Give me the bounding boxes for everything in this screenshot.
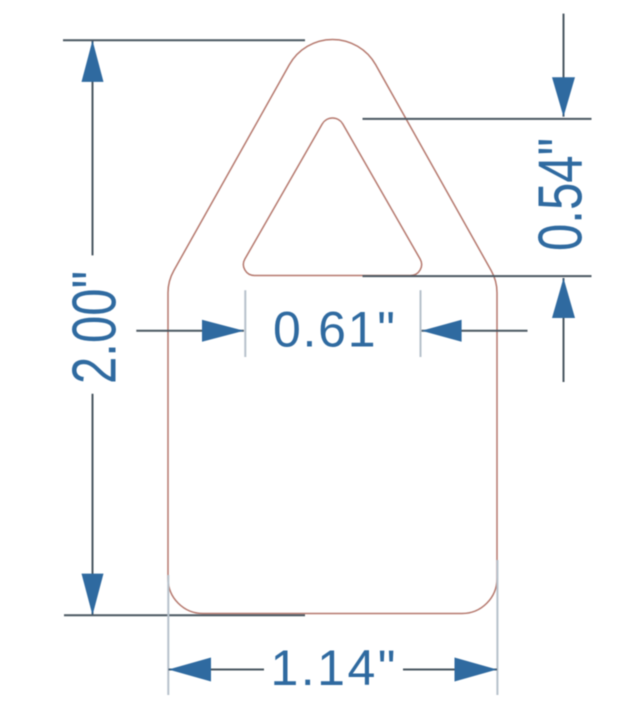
svg-text:1.14": 1.14" xyxy=(271,640,396,696)
svg-text:0.54": 0.54" xyxy=(527,138,596,251)
svg-text:2.00": 2.00" xyxy=(61,271,130,384)
svg-text:0.61": 0.61" xyxy=(273,302,395,358)
